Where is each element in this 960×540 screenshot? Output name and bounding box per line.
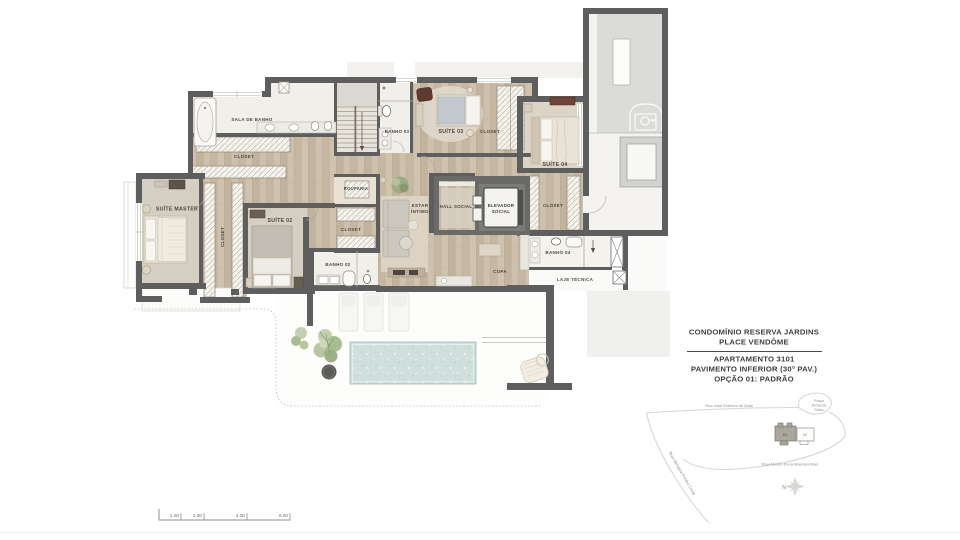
svg-text:CLOSET: CLOSET [341,227,361,232]
svg-text:Praça: Praça [814,399,825,403]
svg-text:Sales: Sales [814,408,823,412]
svg-text:LAJE TÉCNICA: LAJE TÉCNICA [557,275,594,282]
svg-text:4.00: 4.00 [236,513,245,518]
svg-text:ROUPARIA: ROUPARIA [344,186,368,191]
svg-text:2.00: 2.00 [193,513,202,518]
svg-text:Rua Afonso Pena Mascarenhas: Rua Afonso Pena Mascarenhas [762,462,818,467]
svg-text:01: 01 [783,432,788,437]
svg-text:CLOSET: CLOSET [480,129,500,134]
svg-text:Armando: Armando [812,404,827,408]
svg-text:ÍNTIMO: ÍNTIMO [411,207,429,214]
svg-text:1.00: 1.00 [170,513,179,518]
svg-text:N: N [782,485,786,491]
svg-text:SUÍTE 04: SUÍTE 04 [543,160,568,168]
svg-text:SALA DE BANHO: SALA DE BANHO [231,117,272,122]
svg-text:CLOSET: CLOSET [234,154,254,159]
svg-text:BANHO 04: BANHO 04 [545,250,570,255]
svg-text:02: 02 [803,432,808,437]
svg-text:PLACE VENDÔME: PLACE VENDÔME [719,338,789,347]
svg-text:SUÍTE 03: SUÍTE 03 [439,127,464,135]
svg-text:CLOSET: CLOSET [220,227,225,247]
svg-text:COPA: COPA [493,269,507,274]
svg-text:Rua José Esteves de Ávila: Rua José Esteves de Ávila [705,403,753,408]
svg-text:OPÇÃO 01: PADRÃO: OPÇÃO 01: PADRÃO [714,375,794,384]
svg-text:ELEVADOR: ELEVADOR [488,203,515,208]
svg-text:6.00: 6.00 [279,513,288,518]
svg-text:PAVIMENTO INFERIOR (30° PAV.): PAVIMENTO INFERIOR (30° PAV.) [691,365,817,374]
svg-text:BANHO 02: BANHO 02 [325,262,350,267]
svg-text:SUÍTE 02: SUÍTE 02 [268,216,293,224]
svg-text:APARTAMENTO 3101: APARTAMENTO 3101 [714,355,795,364]
svg-text:ESTAR: ESTAR [412,203,429,208]
svg-text:BANHO 03: BANHO 03 [385,129,410,134]
svg-text:SUÍTE MASTER: SUÍTE MASTER [156,205,198,213]
svg-text:SOCIAL: SOCIAL [492,209,510,214]
svg-text:CLOSET: CLOSET [543,203,563,208]
svg-text:HALL SOCIAL: HALL SOCIAL [440,204,473,209]
svg-text:CONDOMÍNIO RESERVA JARDINS: CONDOMÍNIO RESERVA JARDINS [689,328,819,337]
